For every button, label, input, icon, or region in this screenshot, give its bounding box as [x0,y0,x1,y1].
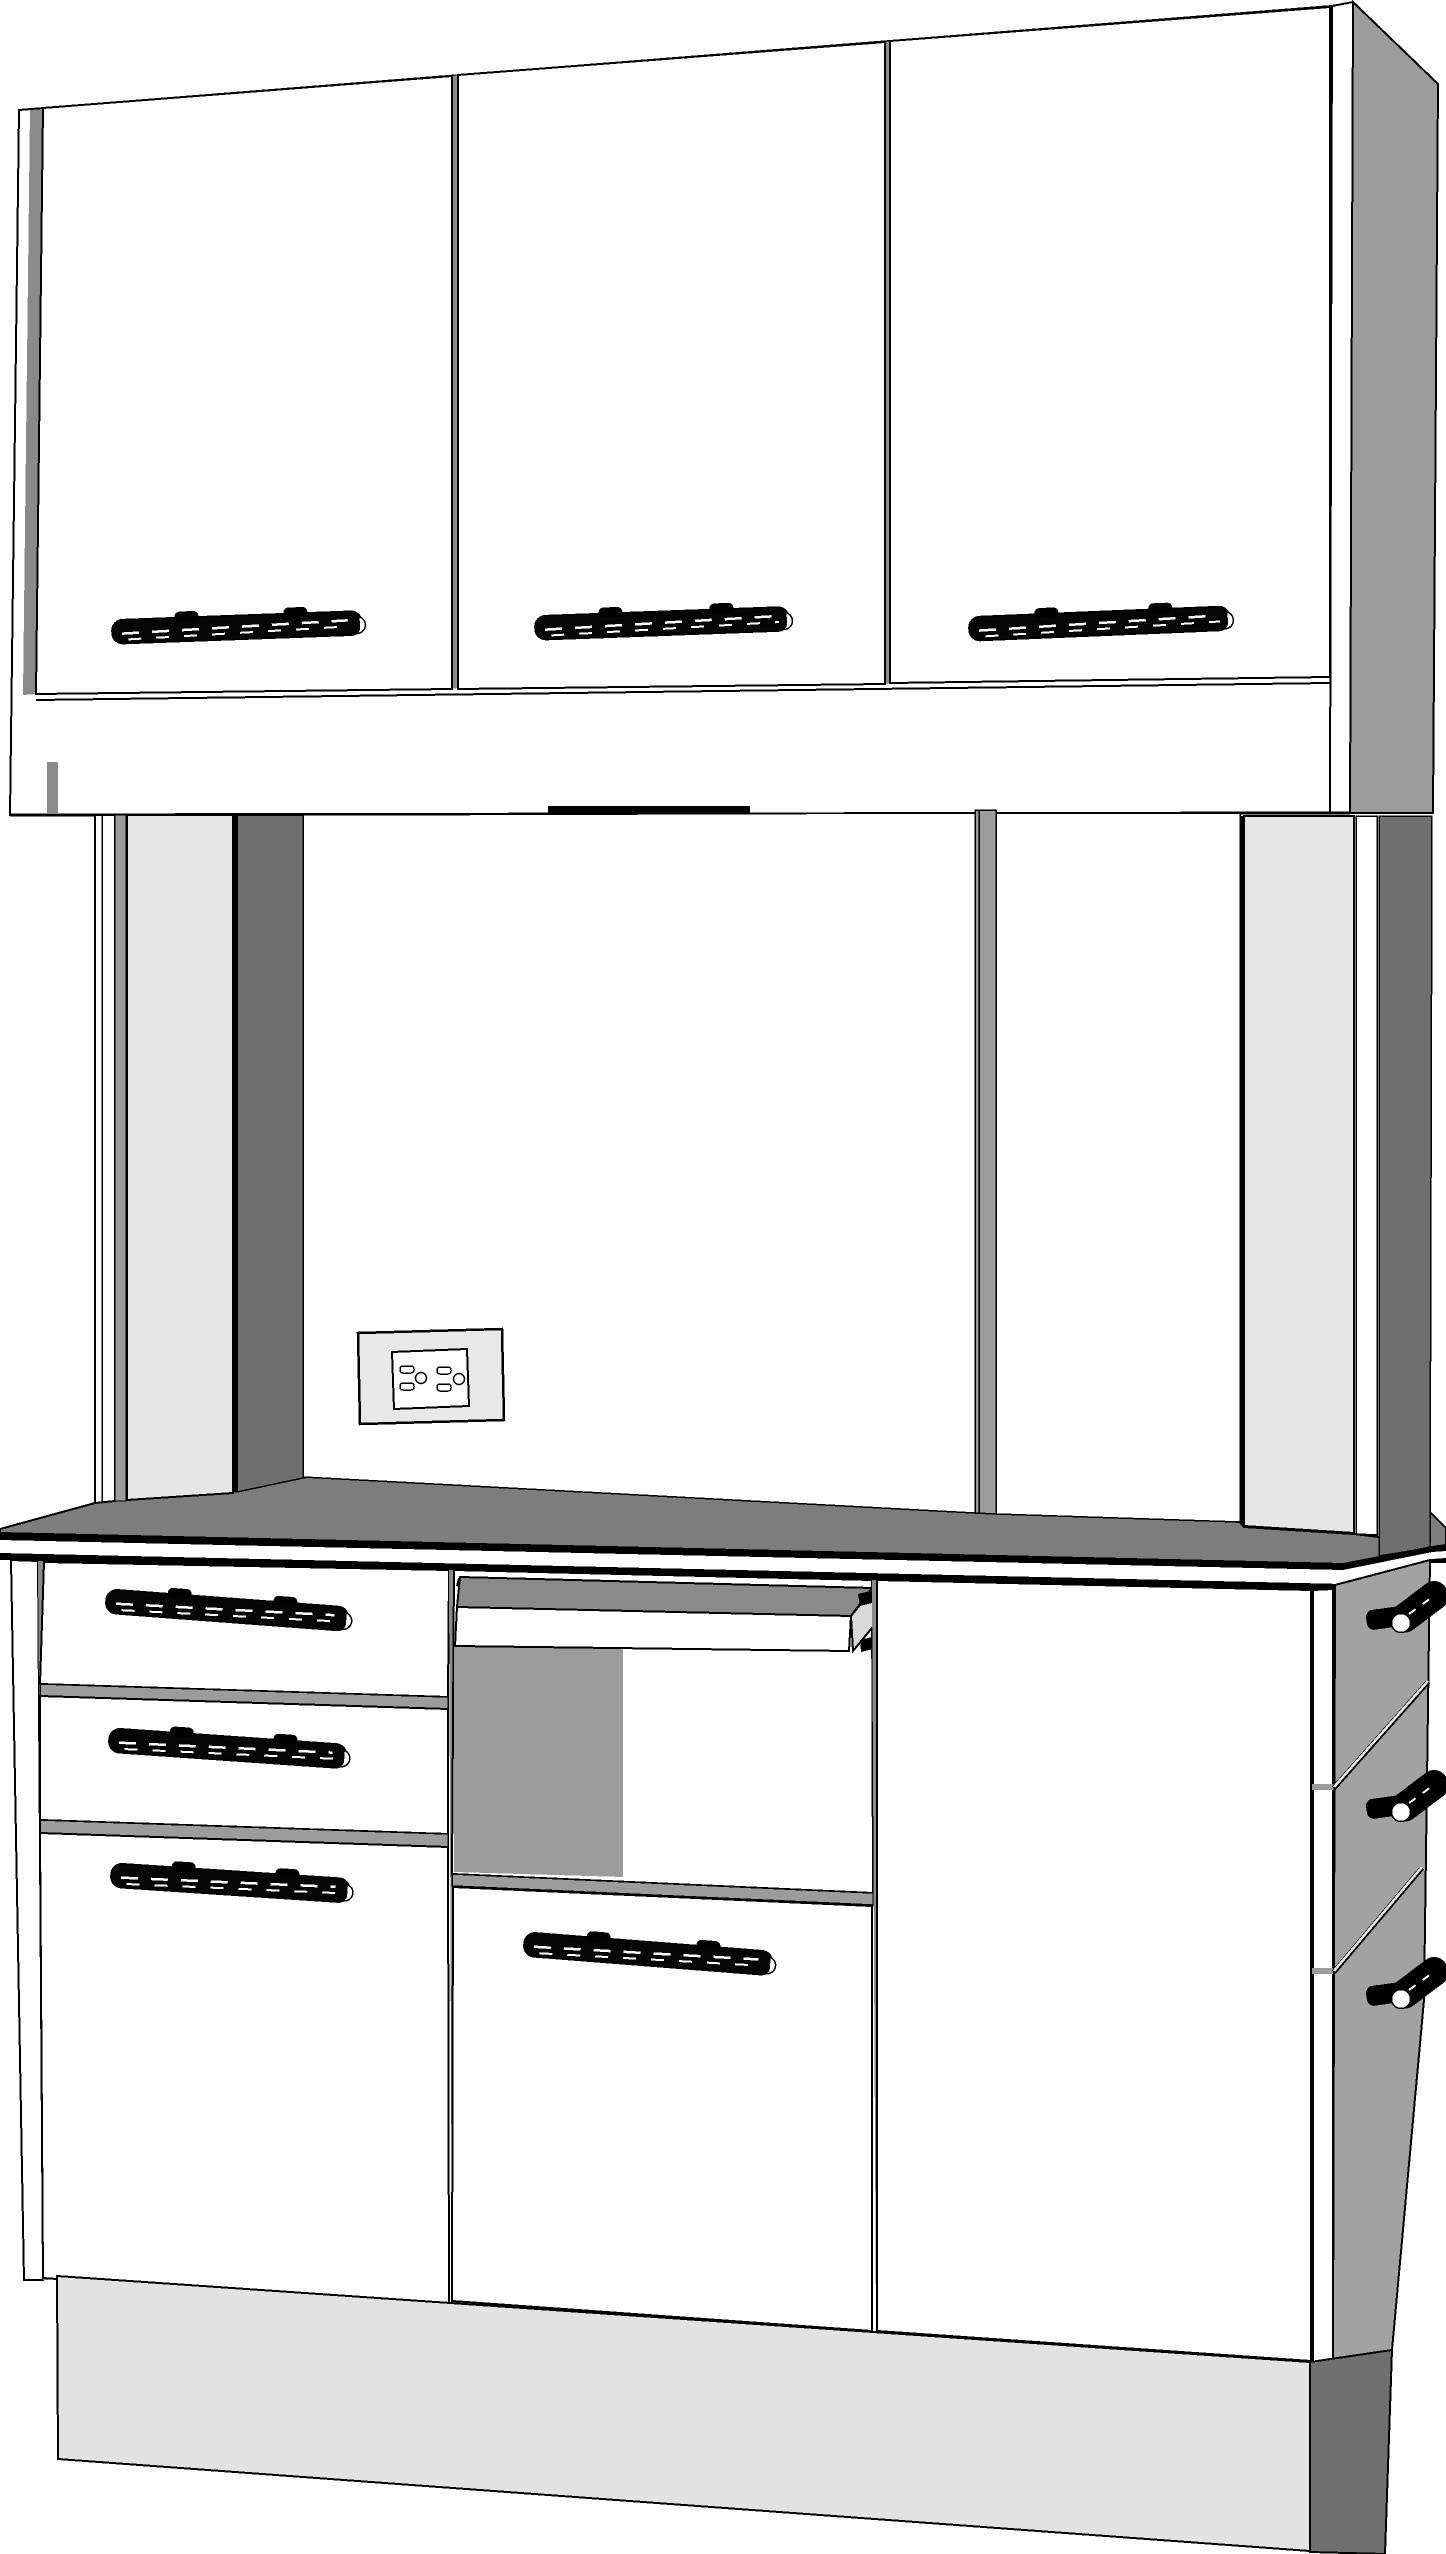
electrical-outlet [358,1329,504,1424]
pullout-tray [455,1577,877,1652]
upper-door-right [890,7,1330,683]
drawing-canvas [0,0,1446,2554]
cabinet-hutch-drawing [0,0,1446,2554]
hutch-right-side-shadow [1379,816,1432,1556]
drawer-1-face [40,1562,449,1697]
upper-cabinet-side-panel [1350,2,1438,813]
hutch-left-upright [95,815,115,1503]
right-stile-gap-mark-2 [1312,1968,1334,1974]
hutch-back-divider [975,810,996,1514]
outlet-ground-hole-right [454,1374,465,1385]
base-side-panel [1310,2350,1392,2554]
outlet-slot-bottom-right [437,1384,451,1391]
outlet-slot-bottom-left [400,1383,414,1390]
hutch-left-pillar-front [127,815,233,1500]
upper-door-middle [458,42,885,689]
outlet-ground-hole-left [416,1373,427,1384]
hutch-right-upright [1356,816,1377,1535]
upper-cabinet [10,2,1438,816]
drawer-2-face [40,1696,448,1834]
hutch [47,762,1432,1556]
center-bay-shadow-wall [454,1632,623,1877]
right-door [877,1580,1311,2361]
outlet-slot-top-right [437,1367,451,1374]
drawer-3-face [40,1833,449,2307]
upper-door-left [36,76,452,694]
hutch-left-notch-shadow [47,762,58,814]
base-right-stile [1313,1589,1333,2362]
hutch-left-upright-sliver [115,815,126,1501]
hutch-left-pillar-side-shadow [237,815,303,1492]
hutch-right-pillar-front [1244,816,1354,1533]
outlet-slot-top-left [400,1366,414,1373]
base-cabinet [11,1560,1446,2362]
hutch-back-panel-right [996,813,1240,1522]
right-stile-gap-mark-1 [1312,1784,1334,1790]
